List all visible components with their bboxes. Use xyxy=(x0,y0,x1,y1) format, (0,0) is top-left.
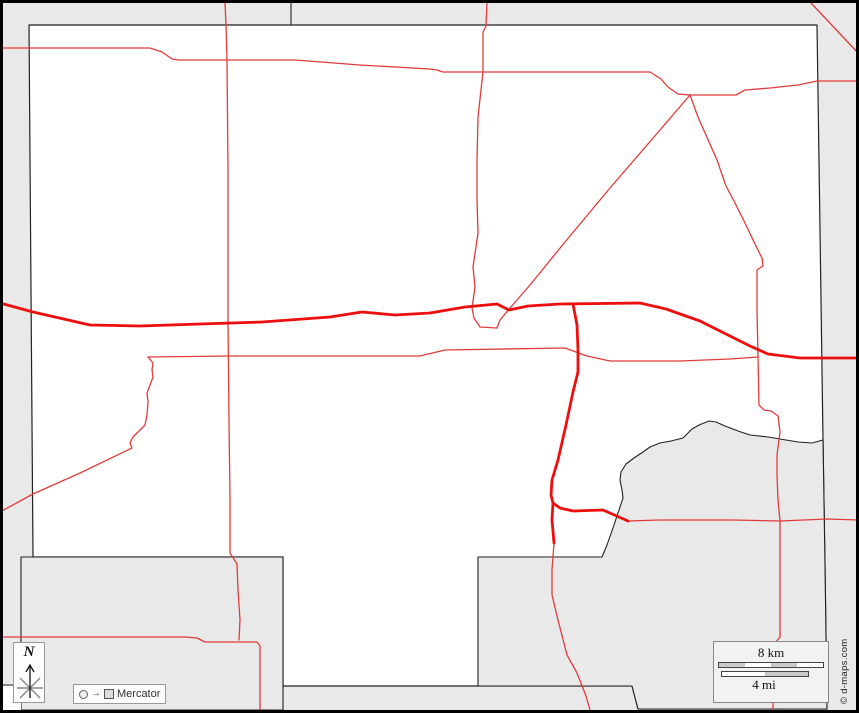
projection-label: Mercator xyxy=(117,688,160,700)
scale-bar-segment xyxy=(745,663,771,667)
scale-bar-segment xyxy=(771,663,797,667)
scale-bar-segment xyxy=(765,672,808,676)
scale-km-label: 8 km xyxy=(714,645,828,660)
scale-indicator: 8 km 4 mi xyxy=(713,641,829,703)
globe-circle-icon xyxy=(79,690,88,699)
compass-icon xyxy=(14,660,44,700)
north-indicator: N xyxy=(13,642,45,703)
scale-bar-segment xyxy=(797,663,823,667)
projection-box: → Mercator xyxy=(73,684,166,704)
map-stage: N → Mercator 8 km 4 mi © d-maps.com xyxy=(0,0,859,713)
scale-bar-segment xyxy=(719,663,745,667)
scale-bar-segment xyxy=(722,672,765,676)
scale-bar-km xyxy=(718,662,824,668)
road-northeast-corner-diagonal xyxy=(811,3,859,54)
attribution-text: © d-maps.com xyxy=(839,638,850,704)
scale-mi-label: 4 mi xyxy=(714,677,814,692)
flat-map-square-icon xyxy=(104,689,114,699)
north-label: N xyxy=(14,644,44,660)
map-canvas xyxy=(0,0,859,713)
arrow-right-icon: → xyxy=(91,689,101,699)
